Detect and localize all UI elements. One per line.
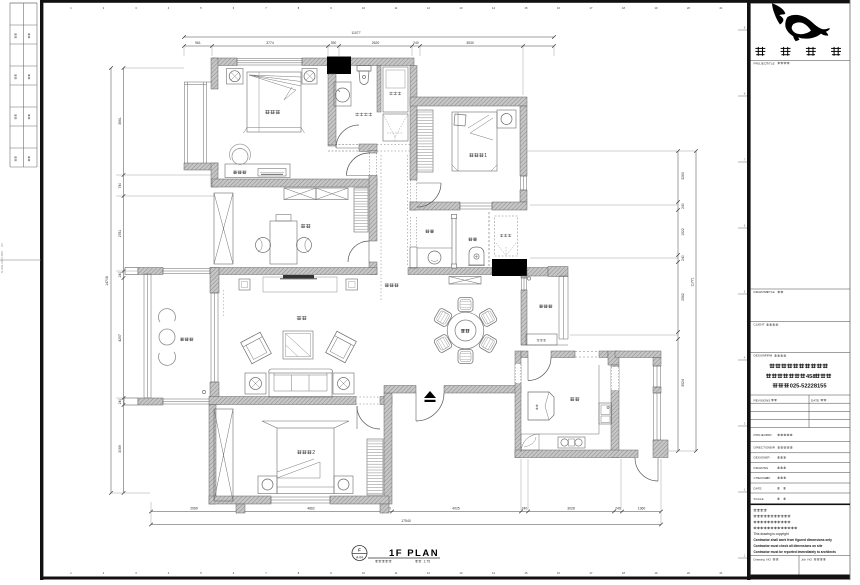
svg-text:DATE: DATE [811, 398, 819, 402]
svg-text:4862: 4862 [307, 507, 315, 511]
svg-text:3263: 3263 [681, 172, 685, 180]
svg-text:240: 240 [522, 507, 528, 511]
svg-text:F: F [358, 548, 361, 553]
svg-text:FIRM: FIRM [765, 354, 773, 358]
svg-text:2620: 2620 [372, 41, 380, 45]
svg-text:2781: 2781 [118, 230, 122, 238]
svg-text:Job: Job [801, 558, 806, 562]
svg-text:1522: 1522 [681, 228, 685, 236]
svg-text:025-52228155: 025-52228155 [790, 383, 827, 389]
svg-text:BY: BY [766, 476, 770, 480]
svg-text:2: 2 [312, 450, 315, 456]
svg-text:3530: 3530 [466, 41, 474, 45]
svg-text:DATE: DATE [754, 487, 762, 491]
svg-text:DESIGNER: DESIGNER [754, 456, 771, 460]
svg-text:240: 240 [681, 255, 685, 261]
svg-text:Contractor must be reported im: Contractor must be reported immediately … [754, 550, 837, 554]
svg-text:Drawing: Drawing [754, 558, 766, 562]
svg-text:DIR: DIR [766, 433, 772, 437]
svg-text:This drawing is copyright: This drawing is copyright [754, 532, 789, 536]
svg-text:1: 1 [484, 153, 487, 159]
svg-text:4257: 4257 [118, 334, 122, 342]
svg-text:3069: 3069 [118, 445, 122, 453]
svg-text:Contractor shall work from fig: Contractor shall work from figured dimen… [754, 538, 833, 542]
svg-text:3524: 3524 [681, 379, 685, 387]
svg-text:A-04: A-04 [356, 556, 363, 560]
svg-text:DIRECTION: DIRECTION [754, 446, 771, 450]
svg-text:740: 740 [118, 183, 122, 189]
svg-text:SCALE: SCALE [754, 497, 764, 501]
svg-text:3028: 3028 [567, 507, 575, 511]
svg-text:240: 240 [118, 399, 122, 405]
svg-text:DRAWING: DRAWING [754, 466, 769, 470]
svg-text:3774: 3774 [266, 41, 274, 45]
svg-text:REVISIONS: REVISIONS [754, 398, 771, 402]
svg-text:NJHN-2016-058: NJHN-2016-058 [0, 251, 4, 273]
svg-text:240: 240 [681, 203, 685, 209]
svg-text:NO: NO [766, 558, 771, 562]
svg-text:240: 240 [413, 41, 419, 45]
svg-text:961: 961 [195, 41, 201, 45]
svg-text:CLIENT: CLIENT [754, 323, 765, 327]
svg-text:NO: NO [807, 558, 812, 562]
svg-text:11771: 11771 [691, 277, 695, 286]
svg-text:240: 240 [615, 507, 621, 511]
svg-text:Contractor must check all dime: Contractor must check all dimensions on … [754, 544, 823, 548]
svg-text:TITLE: TITLE [766, 290, 774, 294]
svg-text:240: 240 [118, 272, 122, 278]
svg-text:14708: 14708 [105, 276, 109, 286]
svg-text:DESIGN: DESIGN [754, 354, 766, 358]
svg-text:1F PLAN: 1F PLAN [389, 548, 439, 559]
svg-text:DIR: DIR [770, 446, 776, 450]
svg-text:11077: 11077 [351, 31, 360, 35]
svg-text:17540: 17540 [401, 519, 411, 523]
svg-text:TITLE: TITLE [766, 61, 774, 65]
svg-text:4025: 4025 [452, 507, 460, 511]
svg-text:2562: 2562 [681, 293, 685, 301]
svg-text:1:75: 1:75 [424, 560, 431, 564]
svg-text:390: 390 [331, 41, 337, 45]
svg-text:3661: 3661 [118, 117, 122, 125]
svg-text:A3: A3 [0, 243, 4, 247]
svg-text:2969: 2969 [190, 507, 198, 511]
svg-text:1360: 1360 [638, 507, 646, 511]
svg-text:458: 458 [806, 374, 816, 380]
